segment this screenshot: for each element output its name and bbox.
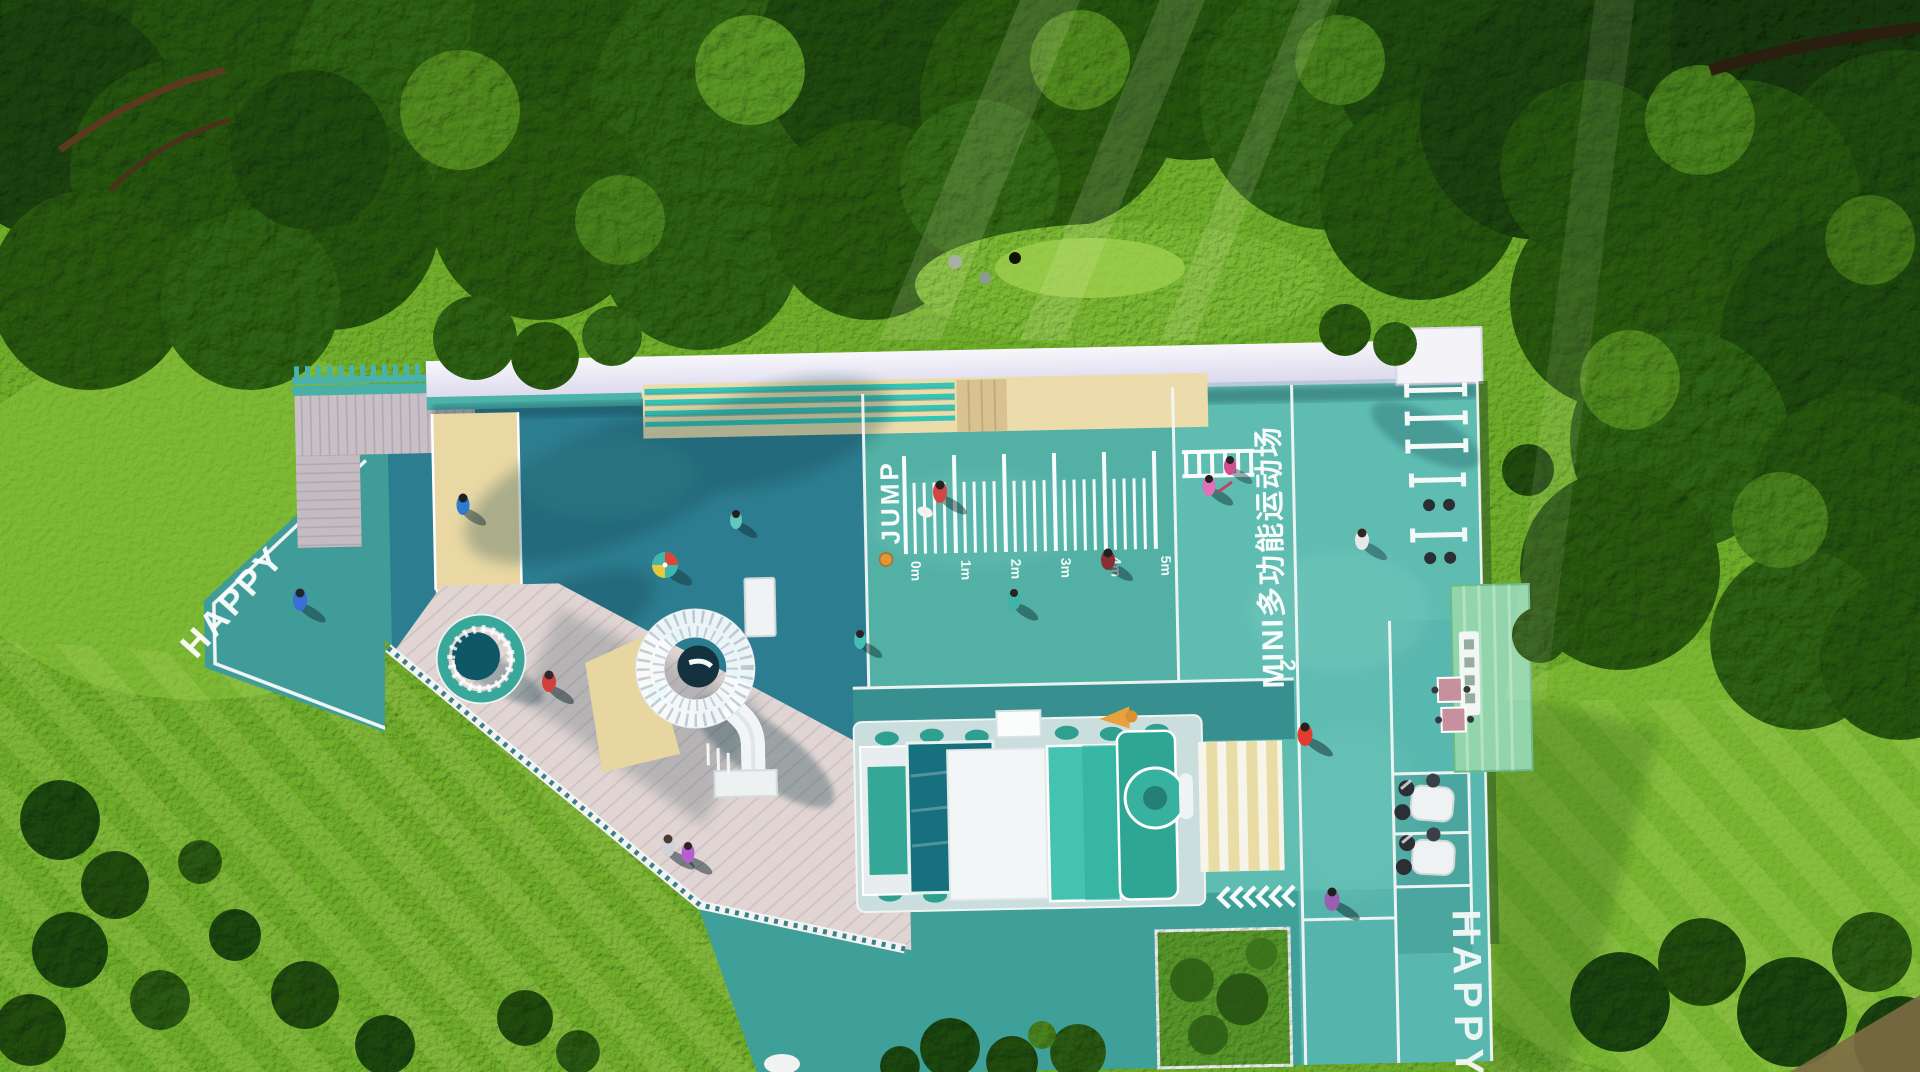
planter-bed xyxy=(1156,928,1292,1068)
train-bumper xyxy=(1179,773,1194,819)
train-car-canopy xyxy=(947,748,1048,900)
ruler-label-5m: 5m xyxy=(1158,555,1174,576)
ruler-label-2m: 2m xyxy=(1008,559,1024,580)
jump-label: JUMP xyxy=(874,460,906,545)
slide-exit-platform xyxy=(714,770,777,797)
ball-icon xyxy=(879,553,892,566)
aerial-playground-render: HAPPY xyxy=(0,0,1920,1072)
ruler-label-0m: 0m xyxy=(908,561,924,582)
station-number: 2 xyxy=(1275,659,1300,672)
slide-tower xyxy=(744,578,775,637)
ruler-label-3m: 3m xyxy=(1058,558,1074,579)
zebra-crossing xyxy=(1198,740,1285,872)
court-title-text: MINI多功能运动场 xyxy=(1252,425,1291,689)
happy-right-text: HAPPY xyxy=(1444,909,1492,1072)
ruler-label-1m: 1m xyxy=(958,560,974,581)
play-train xyxy=(853,705,1205,912)
scene-canvas: HAPPY xyxy=(0,0,1920,1072)
